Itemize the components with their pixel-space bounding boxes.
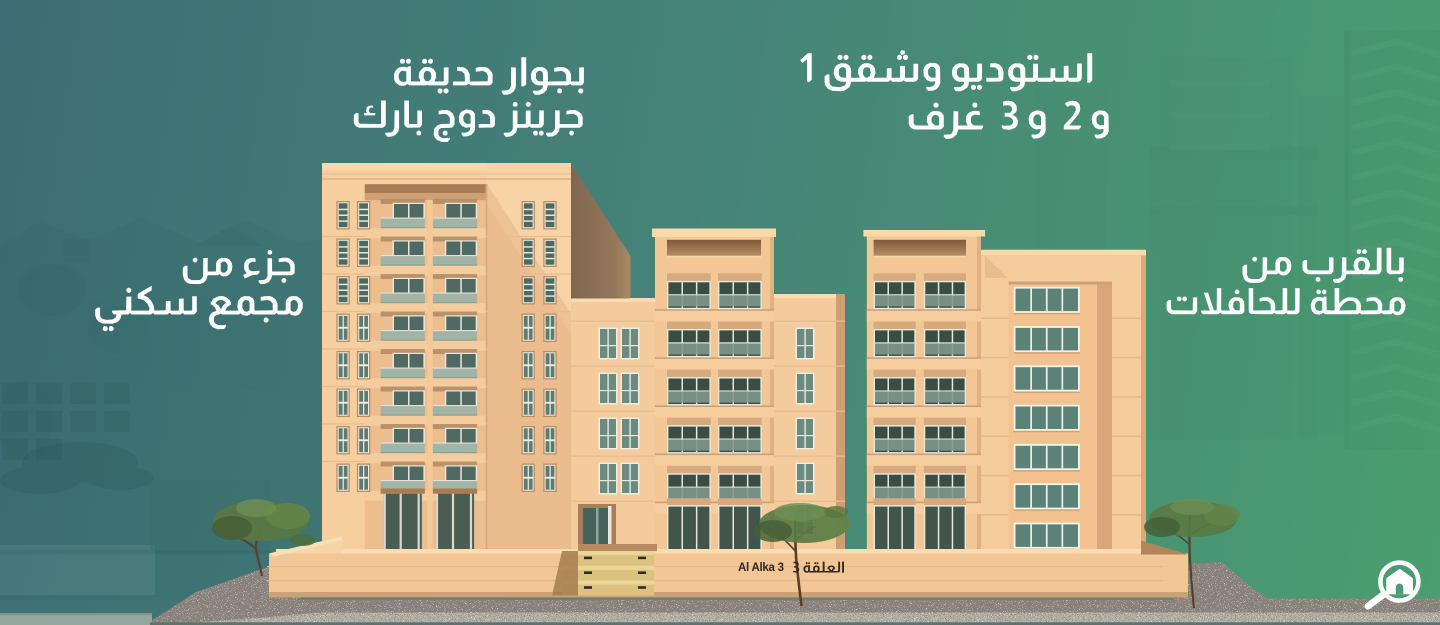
svg-text:Al Alka 3: Al Alka 3 <box>738 562 784 574</box>
